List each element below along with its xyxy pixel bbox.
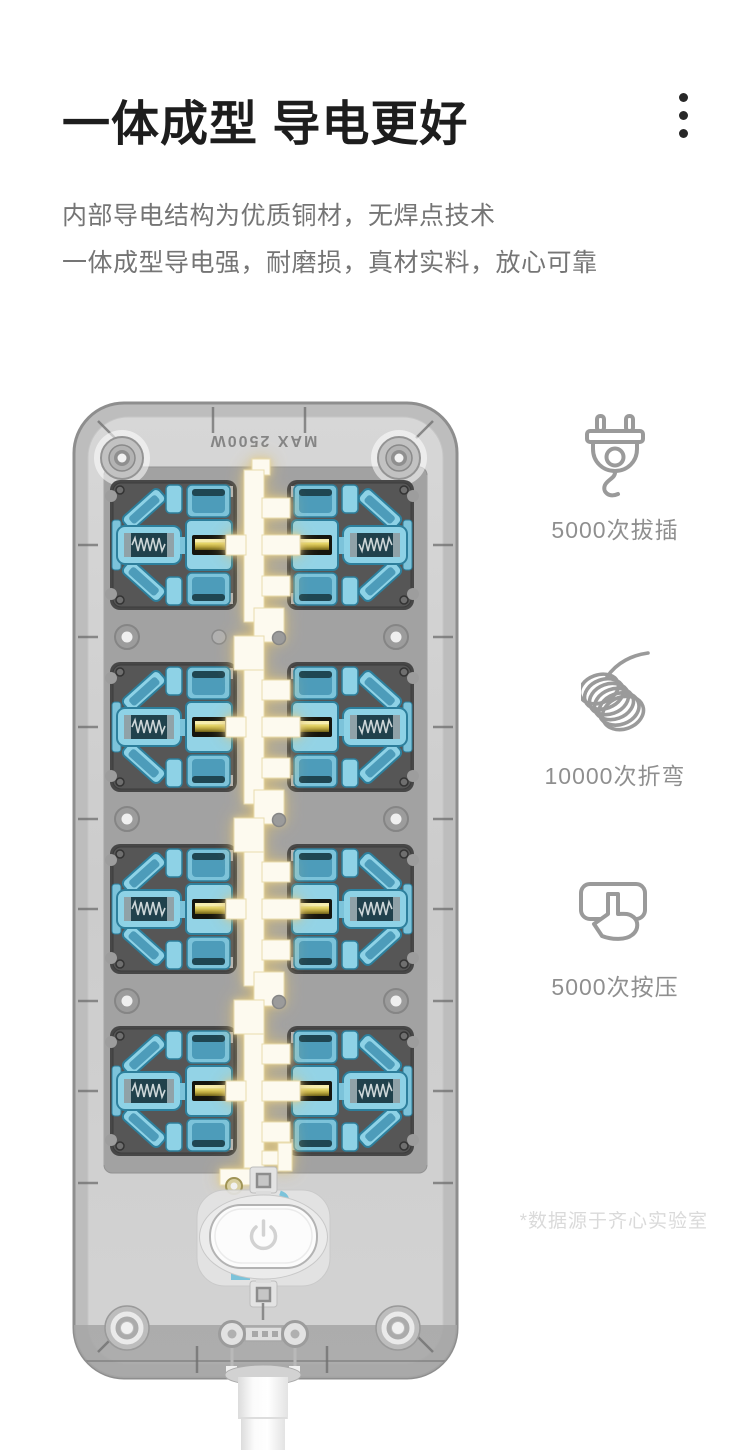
menu-dot-icon <box>679 129 688 138</box>
plug-icon <box>584 413 646 510</box>
more-options-button[interactable] <box>679 93 689 147</box>
product-detail-page: 一体成型 导电更好 内部导电结构为优质铜材，无焊点技术 一体成型导电强，耐磨损，… <box>0 0 750 1450</box>
coil-wire-icon <box>581 649 651 744</box>
power-strip-product-image: MAX 2500W <box>58 395 478 1450</box>
press-button-icon <box>577 881 649 952</box>
feature-label-plug: 5000次拔插 <box>480 511 750 545</box>
page-title: 一体成型 导电更好 <box>62 84 468 154</box>
subtitle-line-1: 内部导电结构为优质铜材，无焊点技术 <box>62 196 496 232</box>
subtitle-line-2: 一体成型导电强，耐磨损，真材实料，放心可靠 <box>62 243 598 279</box>
feature-label-press: 5000次按压 <box>480 968 750 1002</box>
menu-dot-icon <box>679 93 688 102</box>
product-marking-text: MAX 2500W <box>209 432 318 449</box>
footnote-text: *数据源于齐心实验室 <box>520 1206 708 1233</box>
feature-label-bend: 10000次折弯 <box>480 757 750 791</box>
menu-dot-icon <box>679 111 688 120</box>
power-cord <box>225 1365 301 1450</box>
